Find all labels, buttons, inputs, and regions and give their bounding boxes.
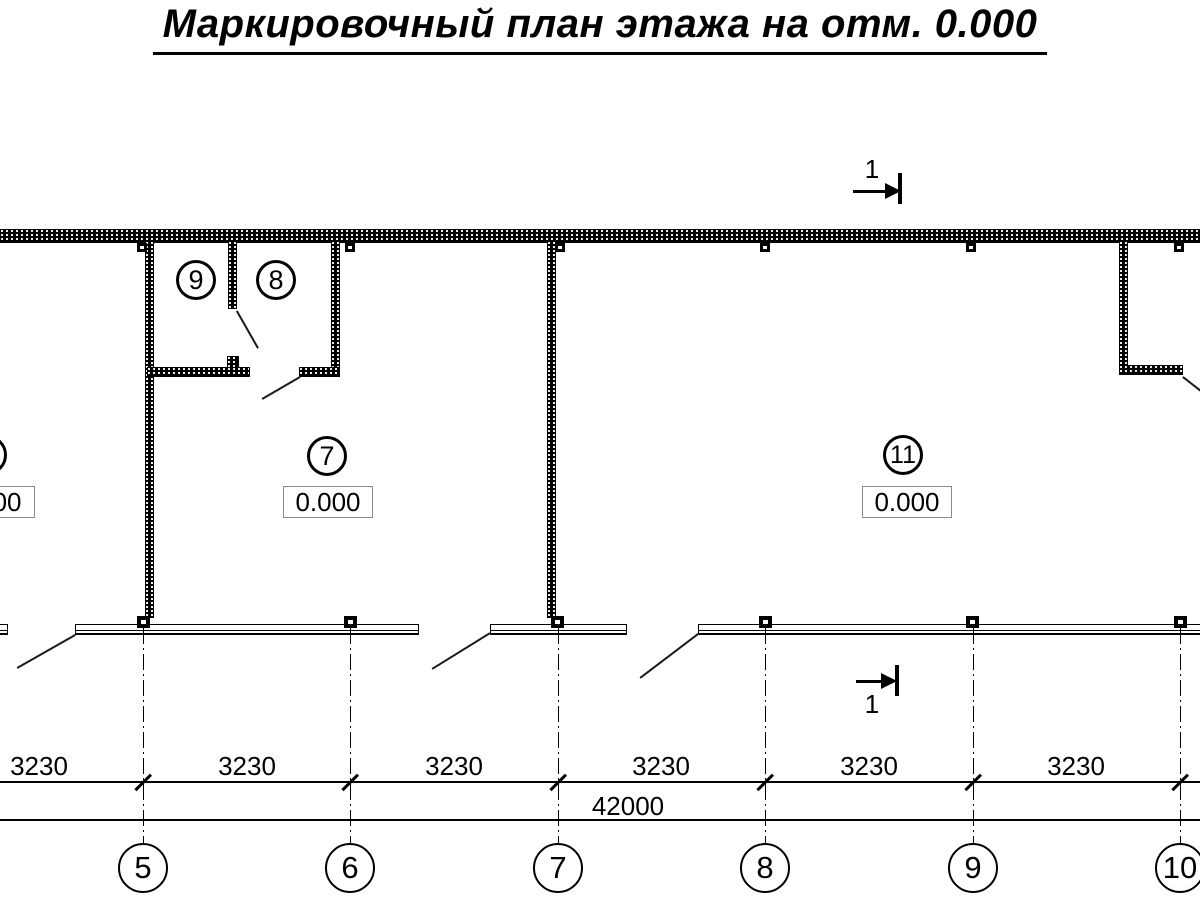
wall-marker-grid10 <box>1174 243 1184 252</box>
room-number-8: 8 <box>268 265 283 295</box>
elevation-box-7: 0.000 <box>283 486 373 518</box>
door-leader-room11 <box>1183 376 1200 391</box>
room8-right-wall <box>331 241 340 377</box>
drawing-title: Маркировочный план этажа на отм. 0.000 <box>153 2 1048 55</box>
elevation-value-7: 0.000 <box>295 487 360 517</box>
door-leader-entry-3 <box>640 633 699 678</box>
wall-marker-grid7 <box>555 243 565 252</box>
partition-room9-room8 <box>228 241 237 309</box>
wall-grid10 <box>1119 241 1128 375</box>
elevation-box-11: 0.000 <box>862 486 952 518</box>
room8-bottom-wall <box>299 367 340 377</box>
door-leader-entry-2 <box>432 632 491 669</box>
room-tag-11: 11 <box>883 435 923 475</box>
grid-bubble-10-label: 10 <box>1163 850 1197 885</box>
dim-label-6: 3230 <box>1026 751 1126 782</box>
exterior-top-wall <box>0 229 1200 243</box>
dim-label-total: 42000 <box>558 791 698 822</box>
column-marker-grid6 <box>344 616 357 628</box>
drawing-title-row: Маркировочный план этажа на отм. 0.000 <box>0 2 1200 55</box>
grid-bubble-10: 10 <box>1155 843 1200 893</box>
column-marker-grid10 <box>1174 616 1187 628</box>
grid-bubble-8: 8 <box>740 843 790 893</box>
room-number-9: 9 <box>188 265 203 295</box>
room11-bottom-wall <box>1119 365 1183 375</box>
door-leader-entry-1 <box>17 634 76 668</box>
grid-bubble-5-label: 5 <box>134 850 151 885</box>
room-tag-left-partial <box>0 435 7 475</box>
door-leader-partition <box>236 310 259 348</box>
grid-bubble-6: 6 <box>325 843 375 893</box>
window-band-a <box>0 624 8 635</box>
wall-marker-grid6 <box>345 243 355 252</box>
wall-grid5 <box>145 241 154 618</box>
column-marker-grid5 <box>137 616 150 628</box>
grid-line-8 <box>765 628 766 843</box>
elevation-box-left-partial: 0.000 <box>0 486 35 518</box>
grid-line-6 <box>350 628 351 843</box>
dim-line-segments <box>0 781 1200 783</box>
dim-label-5: 3230 <box>819 751 919 782</box>
room-tag-8: 8 <box>256 260 296 300</box>
grid-bubble-7: 7 <box>533 843 583 893</box>
section-label-bottom: 1 <box>850 691 894 717</box>
grid-bubble-6-label: 6 <box>341 850 358 885</box>
floor-plan-drawing: Маркировочный план этажа на отм. 0.000 9… <box>0 0 1200 900</box>
section-label-top: 1 <box>850 156 894 182</box>
grid-line-10 <box>1180 628 1181 843</box>
section-line-top <box>853 190 889 193</box>
dim-label-4: 3230 <box>611 751 711 782</box>
elevation-value-11: 0.000 <box>874 487 939 517</box>
dim-label-2: 3230 <box>197 751 297 782</box>
dim-label-3: 3230 <box>404 751 504 782</box>
room-tag-7: 7 <box>307 436 347 476</box>
grid-bubble-7-label: 7 <box>549 850 566 885</box>
section-bar-bottom <box>895 665 899 696</box>
grid-line-9 <box>973 628 974 843</box>
grid-bubble-8-label: 8 <box>756 850 773 885</box>
wall-grid7 <box>547 241 556 618</box>
column-marker-grid8 <box>759 616 772 628</box>
room-number-11: 11 <box>890 441 916 469</box>
room-number-7: 7 <box>319 441 334 471</box>
room9-bottom-wall <box>147 367 250 377</box>
wall-marker-grid5 <box>137 243 147 252</box>
window-band-d <box>698 624 1200 635</box>
column-marker-grid7 <box>551 616 564 628</box>
elevation-value-left-partial: 0.000 <box>0 487 22 517</box>
section-bar-top <box>898 173 902 204</box>
column-marker-grid9 <box>966 616 979 628</box>
door-leader-room8 <box>262 376 301 399</box>
room-tag-9: 9 <box>176 260 216 300</box>
grid-bubble-9-label: 9 <box>964 850 981 885</box>
grid-bubble-9: 9 <box>948 843 998 893</box>
wall-marker-grid8 <box>760 243 770 252</box>
grid-line-5 <box>143 628 144 843</box>
wall-marker-grid9 <box>966 243 976 252</box>
dim-label-1: 3230 <box>0 751 89 782</box>
window-band-b <box>75 624 419 635</box>
grid-bubble-5: 5 <box>118 843 168 893</box>
